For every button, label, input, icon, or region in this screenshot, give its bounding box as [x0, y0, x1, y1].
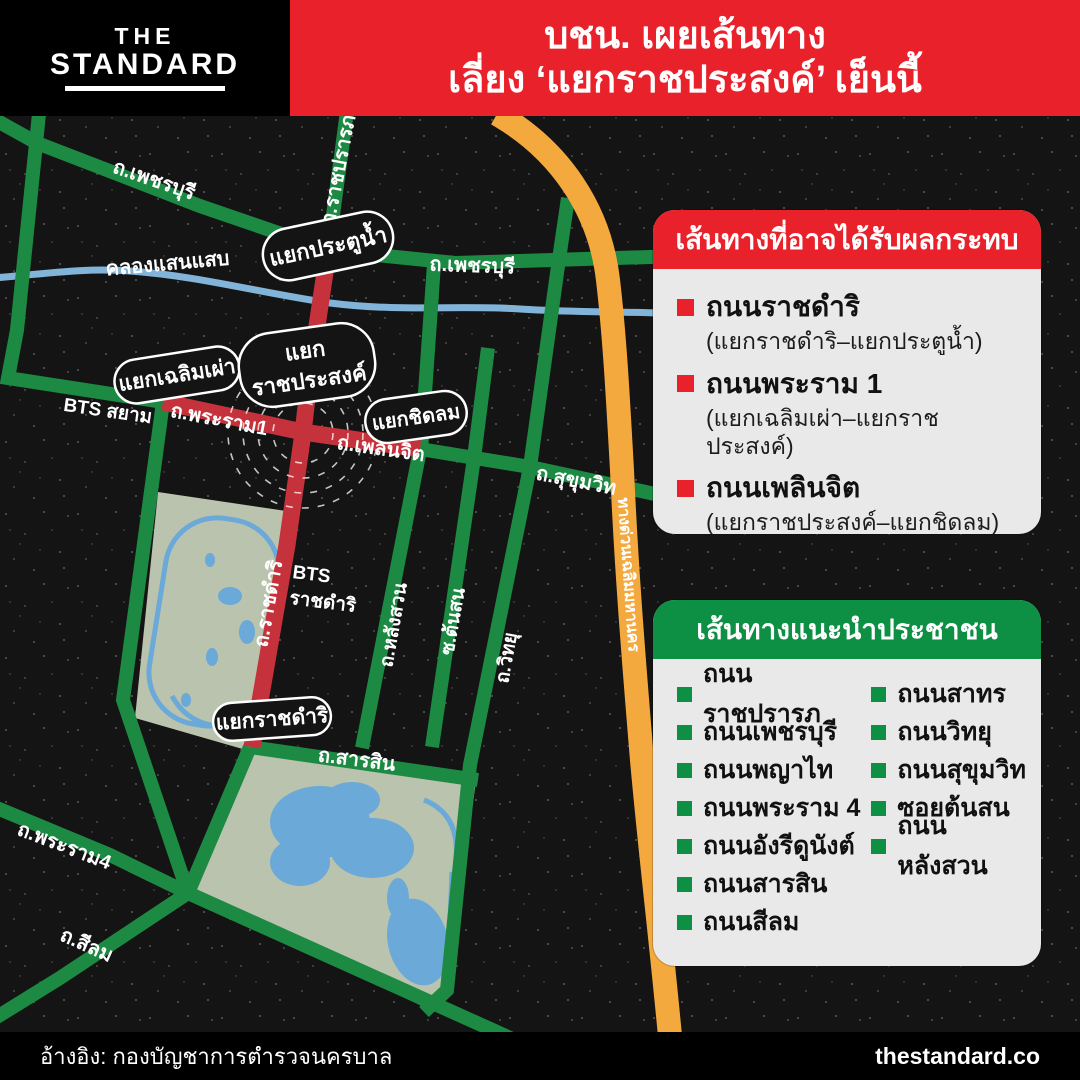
headline-line1: บชน. เผยเส้นทาง: [544, 14, 826, 58]
green-square-bullet-icon: [871, 725, 886, 740]
green-square-bullet-icon: [871, 763, 886, 778]
green-square-bullet-icon: [871, 687, 886, 702]
recommended-road-name: ถนนสุขุมวิท: [897, 750, 1026, 790]
green-square-bullet-icon: [677, 763, 692, 778]
affected-road-detail: (แยกเฉลิมเผ่า–แยกราชประสงค์): [706, 405, 1021, 460]
recommended-routes-card: เส้นทางแนะนำประชาชน ถนนราชปรารภ ถนนเพชรบ…: [653, 600, 1041, 966]
green-square-bullet-icon: [677, 839, 692, 854]
affected-routes-card: เส้นทางที่อาจได้รับผลกระทบ ถนนราชดำริ (แ…: [653, 210, 1041, 534]
red-square-bullet-icon: [677, 480, 694, 497]
recommended-road-name: ถนนสีลม: [703, 902, 799, 942]
list-item: ถนนสาทร: [871, 675, 1029, 713]
green-square-bullet-icon: [677, 687, 692, 702]
recommended-road-name: ถนนวิทยุ: [897, 712, 991, 752]
footer-bar: อ้างอิง: กองบัญชาการตำรวจนครบาล thestand…: [0, 1032, 1080, 1080]
list-item: ถนนเพชรบุรี: [677, 713, 865, 751]
recommended-road-name: ถนนสาทร: [897, 674, 1006, 714]
recommended-column-2: ถนนสาทร ถนนวิทยุ ถนนสุขุมวิท ซอยต้นสน ถน…: [871, 675, 1029, 941]
logo-line1: THE: [115, 25, 176, 48]
green-square-bullet-icon: [677, 915, 692, 930]
affected-routes-header: เส้นทางที่อาจได้รับผลกระทบ: [653, 210, 1041, 269]
green-square-bullet-icon: [677, 877, 692, 892]
affected-routes-list: ถนนราชดำริ (แยกราชดำริ–แยกประตูน้ำ) ถนนพ…: [653, 269, 1041, 534]
recommended-routes-list: ถนนราชปรารภ ถนนเพชรบุรี ถนนพญาไท ถนนพระร…: [653, 659, 1041, 941]
affected-road-name: ถนนพระราม 1: [706, 368, 882, 400]
affected-road-detail: (แยกราชดำริ–แยกประตูน้ำ): [706, 328, 1021, 356]
list-item: ถนนพญาไท: [677, 751, 865, 789]
infographic: ถ.เพชรบุรี ถ.ราชปรารภ คลองแสนแสบ ถ.เพชรบ…: [0, 0, 1080, 1080]
list-item: ถนนสารสิน: [677, 865, 865, 903]
list-item: ถนนสีลม: [677, 903, 865, 941]
list-item: ถนนสุขุมวิท: [871, 751, 1029, 789]
headline-line2: เลี่ยง ‘แยกราชประสงค์’ เย็นนี้: [448, 58, 922, 102]
affected-road-name: ถนนราชดำริ: [706, 291, 860, 323]
label-phetchaburi-e: ถ.เพชรบุรี: [429, 253, 515, 280]
recommended-column-1: ถนนราชปรารภ ถนนเพชรบุรี ถนนพญาไท ถนนพระร…: [677, 675, 865, 941]
list-item: ถนนหลังสวน: [871, 827, 1029, 865]
site-url: thestandard.co: [875, 1043, 1040, 1070]
list-item: ถนนอังรีดูนังต์: [677, 827, 865, 865]
recommended-road-name: ถนนพระราม 4: [703, 788, 860, 828]
green-square-bullet-icon: [871, 801, 886, 816]
affected-road-name: ถนนเพลินจิต: [706, 472, 860, 504]
source-credit: อ้างอิง: กองบัญชาการตำรวจนครบาล: [40, 1039, 392, 1074]
list-item: ถนนวิทยุ: [871, 713, 1029, 751]
recommended-routes-header: เส้นทางแนะนำประชาชน: [653, 600, 1041, 659]
red-square-bullet-icon: [677, 375, 694, 392]
green-square-bullet-icon: [871, 839, 886, 854]
affected-road-detail: (แยกราชประสงค์–แยกชิดลม): [706, 509, 1021, 534]
junction-ratchadamri: แยกราชดำริ: [212, 696, 332, 742]
green-square-bullet-icon: [677, 801, 692, 816]
recommended-road-name: ถนนสารสิน: [703, 864, 827, 904]
list-item: ถนนเพลินจิต: [677, 472, 1021, 504]
the-standard-logo: THE STANDARD: [0, 0, 290, 116]
logo-line2: STANDARD: [50, 48, 240, 81]
logo-underline: [65, 86, 225, 91]
list-item: ถนนพระราม 1: [677, 368, 1021, 400]
recommended-road-name: ถนนอังรีดูนังต์: [703, 826, 855, 866]
headline-banner: บชน. เผยเส้นทาง เลี่ยง ‘แยกราชประสงค์’ เ…: [290, 0, 1080, 116]
recommended-road-name: ถนนหลังสวน: [897, 806, 1029, 886]
list-item: ถนนพระราม 4: [677, 789, 865, 827]
green-square-bullet-icon: [677, 725, 692, 740]
list-item: ถนนราชปรารภ: [677, 675, 865, 713]
recommended-road-name: ถนนพญาไท: [703, 750, 833, 790]
recommended-road-name: ถนนเพชรบุรี: [703, 712, 837, 752]
red-square-bullet-icon: [677, 299, 694, 316]
affected-routes-title: เส้นทางที่อาจได้รับผลกระทบ: [676, 218, 1019, 262]
list-item: ถนนราชดำริ: [677, 291, 1021, 323]
recommended-routes-title: เส้นทางแนะนำประชาชน: [696, 608, 997, 652]
